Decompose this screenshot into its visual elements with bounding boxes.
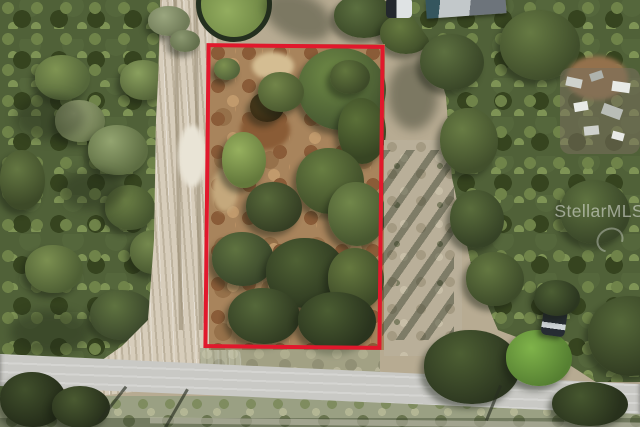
debris-item (584, 125, 600, 136)
tree-canopy (552, 382, 628, 426)
tree-shadow (15, 95, 85, 140)
debris-item (573, 101, 588, 112)
debris-item (589, 70, 604, 82)
parked-trailer (386, 0, 412, 18)
watermark-text: StellarMLS (554, 201, 640, 222)
debris-item (611, 131, 625, 142)
tree-canopy (25, 245, 83, 293)
tree-canopy (506, 330, 572, 386)
shrub (170, 30, 200, 52)
aerial-photo: StellarMLS (0, 0, 640, 427)
tree-canopy (52, 386, 110, 427)
tree-shadow (382, 150, 454, 340)
tree-canopy (0, 150, 45, 210)
tree-canopy (35, 55, 90, 100)
bright-sand (178, 125, 206, 187)
tree-canopy (466, 252, 524, 306)
tree-shadow (60, 170, 125, 210)
tree-shadow (10, 310, 90, 355)
parcel-boundary-rectangle (203, 43, 384, 350)
debris-item (611, 81, 630, 93)
debris-item (601, 103, 624, 120)
tree-canopy (420, 34, 484, 90)
tree-canopy (88, 125, 148, 175)
debris-item (565, 76, 583, 88)
debris-pile (560, 68, 640, 154)
tree-canopy (424, 330, 520, 404)
tree-canopy (440, 108, 498, 174)
tree-canopy (534, 280, 580, 316)
tree-canopy (450, 190, 504, 248)
